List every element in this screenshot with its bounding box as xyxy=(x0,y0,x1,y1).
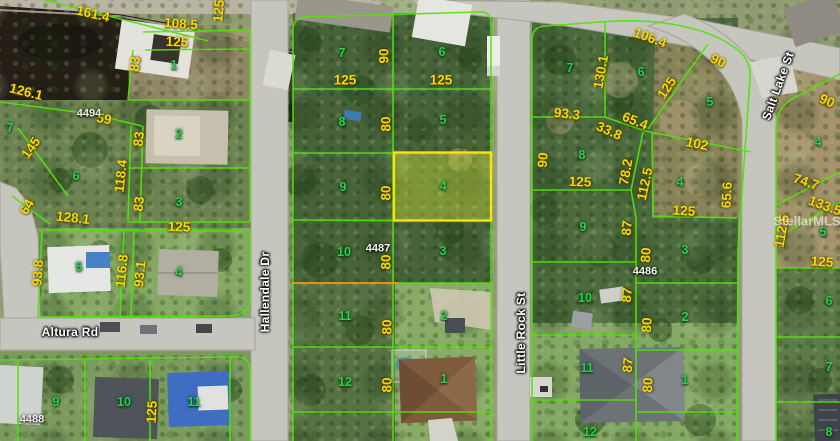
aerial-parcel-map: 161.4108.512583126.15914583118.48364128.… xyxy=(0,0,840,441)
parcel-lines-layer xyxy=(0,0,840,441)
highlighted-parcel xyxy=(394,153,491,221)
